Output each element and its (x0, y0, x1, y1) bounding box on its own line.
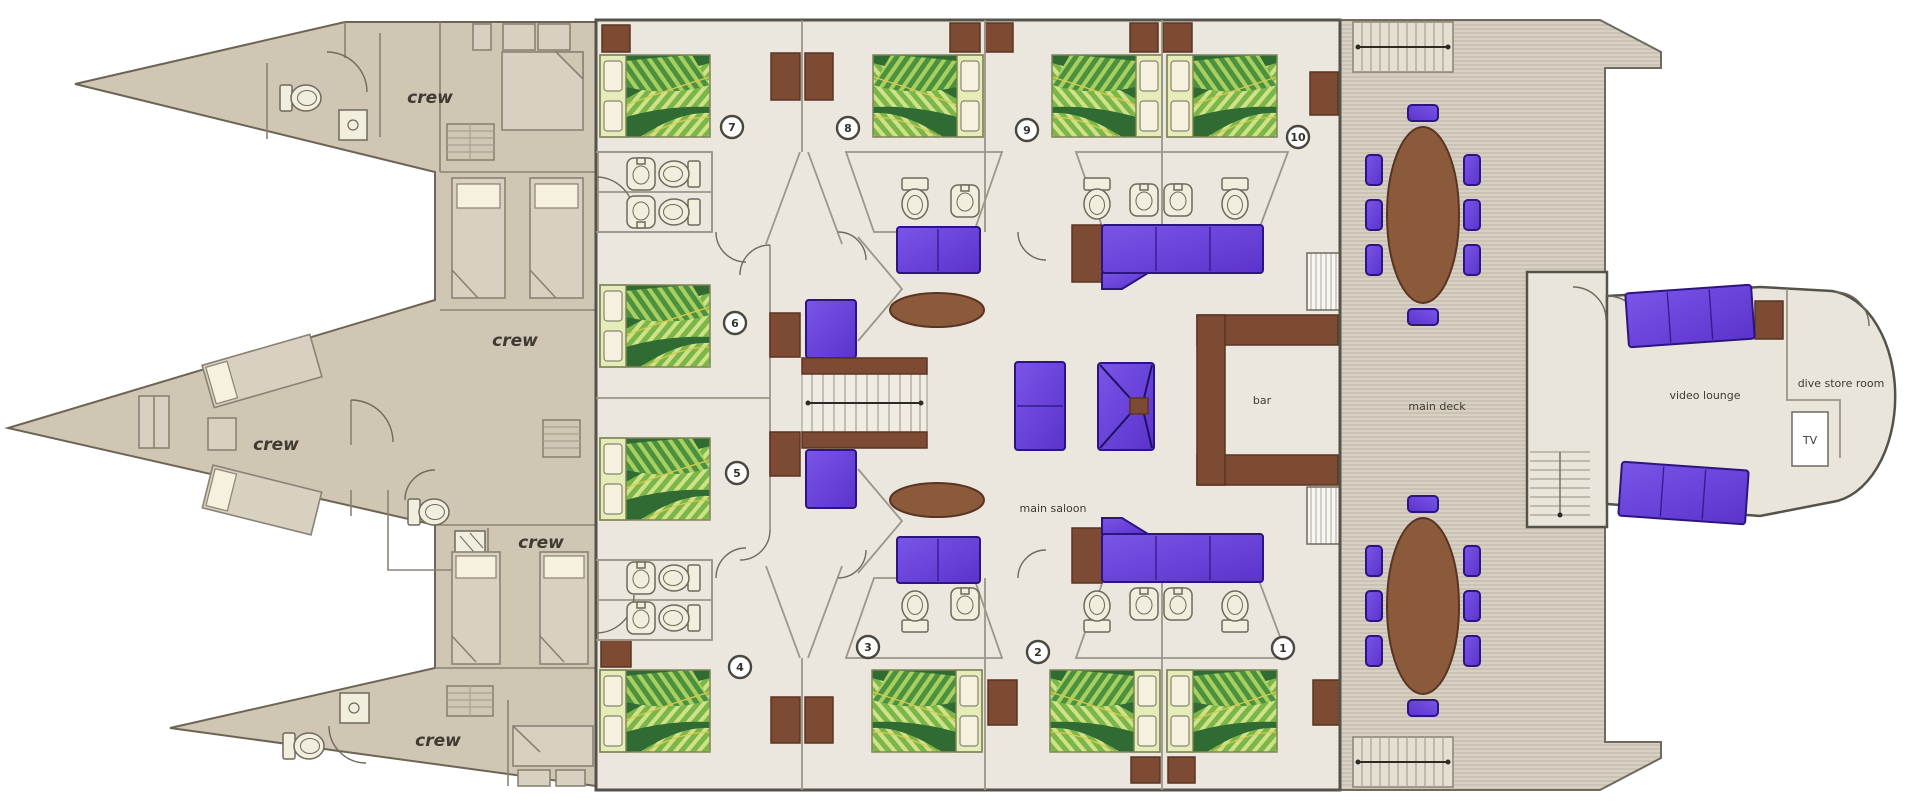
toilet-icon (283, 733, 324, 759)
cabin-8-bed (873, 55, 983, 137)
toilet-icon (1222, 591, 1248, 632)
svg-text:7: 7 (728, 121, 736, 134)
svg-text:8: 8 (844, 122, 852, 135)
shower-icon (340, 693, 369, 723)
sink-icon (1164, 184, 1192, 216)
coffee-table-oval (890, 293, 984, 327)
side-table (770, 432, 800, 476)
cabin-4-number: 4 (729, 656, 751, 678)
cabin-5-number: 5 (726, 462, 748, 484)
svg-text:1: 1 (1279, 642, 1287, 655)
saloon-sofa-top (897, 227, 980, 273)
recliner-chair (1098, 363, 1154, 450)
floor-plan-svg: TV crew crew crew crew crew main saloon … (0, 0, 1920, 809)
deck-stairs-bottom (1353, 737, 1453, 787)
sideboard-louver (1307, 253, 1341, 310)
svg-text:9: 9 (1023, 124, 1031, 137)
sink-icon (627, 196, 655, 228)
sink-icon (627, 562, 655, 594)
toilet-icon (1084, 591, 1110, 632)
tv-label: TV (1802, 434, 1818, 447)
sink-icon (627, 602, 655, 634)
lounge-cabinet (1755, 301, 1783, 339)
sink-icon (627, 158, 655, 190)
catamaran-deck-plan: TV crew crew crew crew crew main saloon … (0, 0, 1920, 809)
saloon-staircase (802, 358, 927, 448)
sink-icon (1130, 588, 1158, 620)
sink-icon (951, 185, 979, 217)
svg-text:6: 6 (731, 317, 739, 330)
sideboard-louver (1307, 487, 1341, 544)
sofa-end-table (1072, 225, 1102, 282)
toilet-icon (902, 178, 928, 219)
cabin-6-number: 6 (724, 312, 746, 334)
toilet-icon (902, 591, 928, 632)
sink-icon (951, 588, 979, 620)
crew-label-top: crew (407, 88, 453, 108)
side-table (770, 313, 800, 357)
svg-text:10: 10 (1290, 131, 1306, 144)
sink-icon (1164, 588, 1192, 620)
hull-outline (8, 22, 596, 786)
toilet-icon (280, 85, 321, 111)
tv-unit: TV (1792, 412, 1828, 466)
svg-text:4: 4 (736, 661, 744, 674)
cabin-7-number: 7 (721, 116, 743, 138)
cabin-2-bed (1050, 670, 1160, 752)
svg-text:3: 3 (864, 641, 872, 654)
cabin-2-number: 2 (1027, 641, 1049, 663)
crew-label-mid-lower: crew (518, 533, 564, 553)
cabin-7-bed (600, 55, 710, 137)
crew-label-mid-left: crew (253, 435, 299, 455)
toilet-icon (1222, 178, 1248, 219)
bar-label: bar (1253, 394, 1272, 407)
lounge-sofa-top (1625, 285, 1754, 348)
cabin-10-bed (1167, 55, 1277, 137)
cabin-9-bed (1052, 55, 1162, 137)
shower-icon (339, 110, 367, 140)
toilet-icon (659, 161, 700, 187)
cabin-1-bed (1167, 670, 1277, 752)
cabin-8-number: 8 (837, 117, 859, 139)
main-deck-label: main deck (1408, 400, 1466, 413)
coffee-table-oval (890, 483, 984, 517)
toilet-icon (659, 199, 700, 225)
video-lounge-label: video lounge (1669, 389, 1740, 402)
cabin-4-bed (600, 670, 710, 752)
stern-vestibule (1527, 272, 1607, 527)
cabin-1-number: 1 (1272, 637, 1294, 659)
armchair (806, 450, 856, 508)
sofa-end-table (1072, 528, 1102, 583)
svg-text:5: 5 (733, 467, 741, 480)
saloon-sofa-bottom (897, 537, 980, 583)
loveseat (1015, 362, 1065, 450)
lounge-sofa-bottom (1618, 462, 1748, 525)
crew-label-bottom: crew (415, 731, 461, 751)
svg-text:2: 2 (1034, 646, 1042, 659)
armchair (806, 300, 856, 358)
cabin-5-bed (600, 438, 710, 520)
toilet-icon (408, 499, 449, 525)
dive-store-room-label: dive store room (1798, 377, 1885, 390)
cabin-6-bed (600, 285, 710, 367)
sink-icon (1130, 184, 1158, 216)
saloon-section (596, 20, 1343, 790)
cabin-10-number: 10 (1287, 126, 1309, 148)
main-saloon-label: main saloon (1020, 502, 1087, 515)
hull-section (8, 22, 596, 786)
toilet-icon (659, 605, 700, 631)
toilet-icon (659, 565, 700, 591)
crew-label-mid-upper: crew (492, 331, 538, 351)
toilet-icon (1084, 178, 1110, 219)
cabin-3-number: 3 (857, 636, 879, 658)
crew-bed (513, 726, 593, 766)
cabin-9-number: 9 (1016, 119, 1038, 141)
cabin-3-bed (872, 670, 982, 752)
deck-stairs-top (1353, 22, 1453, 72)
